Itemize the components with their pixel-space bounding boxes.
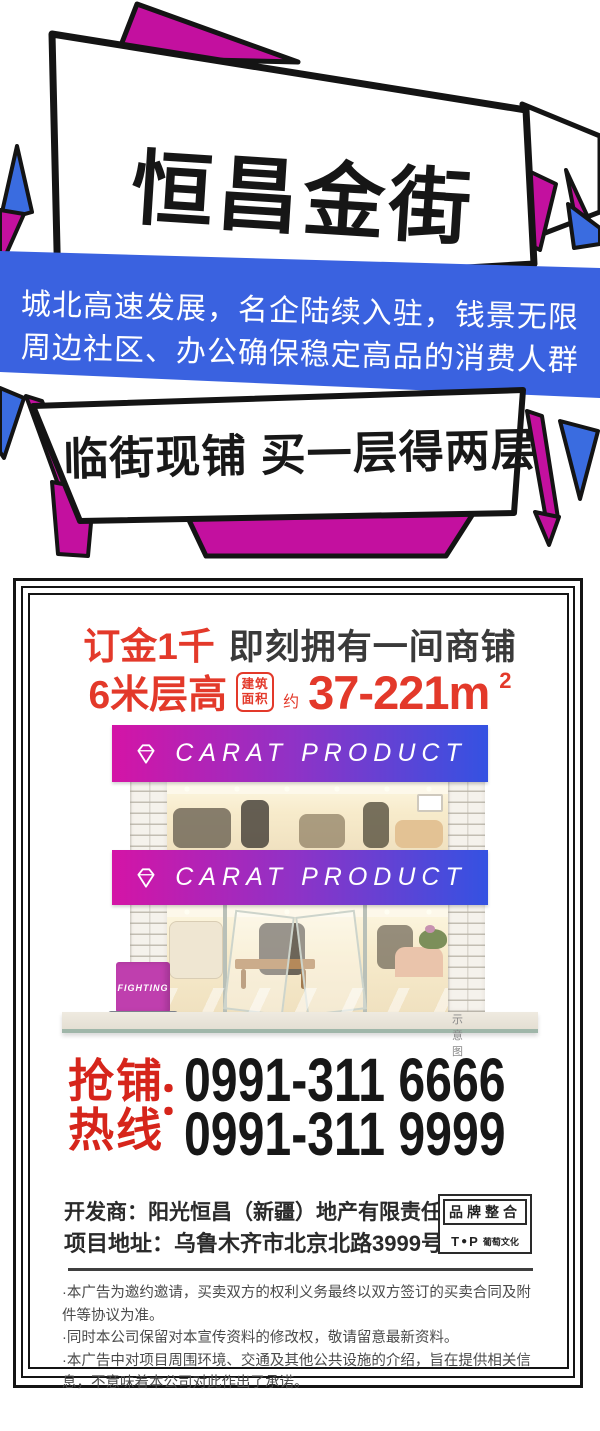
shop-sign-text: CARAT PRODUCT bbox=[175, 739, 466, 768]
disclaimer-line: ·本广告为邀约邀请，买卖双方的权利义务最终以双方签订的买卖合同及附件等协议为准。 bbox=[62, 1282, 540, 1327]
deposit-highlight: 订金1千 bbox=[83, 616, 215, 670]
gem-icon bbox=[133, 866, 159, 890]
area-superscript: 2 bbox=[499, 668, 511, 694]
gem-icon bbox=[133, 742, 159, 766]
slogan-text: 临街现铺 买一层得两层 bbox=[39, 422, 560, 489]
project-address-line: 项目地址：乌鲁木齐市北京北路3999号 bbox=[64, 1226, 443, 1258]
tile-floor bbox=[167, 988, 448, 1012]
brand-logo-t: T bbox=[451, 1234, 459, 1249]
brand-logo: T ● P 葡萄文化 bbox=[440, 1234, 530, 1249]
pink-counter bbox=[395, 947, 443, 977]
clothes-rack-silhouette bbox=[173, 808, 231, 848]
deposit-rest: 即刻拥有一间商铺 bbox=[229, 619, 517, 670]
shop-sign-upper: CARAT PRODUCT bbox=[112, 725, 488, 782]
disclaimer-line: ·同时本公司保留对本宣传资料的修改权，敬请留意最新资料。 bbox=[62, 1327, 540, 1350]
wall-picture bbox=[417, 794, 443, 812]
lower-left-blue-ray bbox=[0, 388, 24, 458]
spec-line: 6米层高 建筑 面积 约 37-221m 2 bbox=[30, 666, 570, 718]
mannequin-silhouette bbox=[241, 800, 269, 848]
brand-logo-dot-icon: ● bbox=[461, 1237, 467, 1247]
flower-blossom bbox=[425, 925, 435, 933]
brand-logo-name: 葡萄文化 bbox=[483, 1235, 519, 1248]
store-interior-upper bbox=[167, 782, 448, 850]
shop-sign-text: CARAT PRODUCT bbox=[175, 863, 466, 892]
area-value: 37-221m bbox=[308, 665, 489, 720]
brand-logo-p: P bbox=[469, 1234, 478, 1249]
brand-integration-box: 品牌整合 T ● P 葡萄文化 bbox=[438, 1194, 532, 1254]
shop-sign-lower: CARAT PRODUCT bbox=[112, 850, 488, 905]
floor-height: 6米层高 bbox=[88, 664, 227, 720]
developer-line: 开发商：阳光恒昌（新疆）地产有限责任公司 bbox=[64, 1196, 484, 1226]
store-interior-lower bbox=[167, 905, 448, 1012]
hotline-label-line1: 抢铺 bbox=[68, 1057, 164, 1105]
lower-right-blue-ray bbox=[560, 421, 598, 499]
clothes-silhouette bbox=[363, 802, 389, 848]
hotline-label-line2: 热线 bbox=[68, 1106, 164, 1154]
top-art: 恒昌金街 城北高速发展，名企陆续入驻，钱景无限 周边社区、办公确保稳定高品的消费… bbox=[0, 0, 600, 560]
standing-sign: FIGHTING bbox=[116, 962, 170, 1013]
brand-box-title: 品牌整合 bbox=[443, 1199, 527, 1225]
approx-label: 约 bbox=[283, 688, 299, 712]
sidewalk bbox=[62, 1012, 538, 1033]
counter-silhouette bbox=[395, 820, 443, 848]
deposit-line: 订金1千 即刻拥有一间商铺 bbox=[30, 616, 570, 662]
area-stamp-line2: 面积 bbox=[242, 692, 269, 707]
area-stamp-line1: 建筑 bbox=[242, 677, 269, 692]
hotline-phone-2: 0991-311 9999 bbox=[184, 1105, 506, 1163]
disclaimer-line: ·本广告中对项目周围环境、交通及其他公共设施的介绍，旨在提供相关信息，不意味着本… bbox=[62, 1350, 540, 1395]
lower-right-magenta-tail bbox=[535, 512, 559, 545]
white-coats-rack bbox=[169, 921, 223, 979]
divider-line bbox=[68, 1268, 533, 1271]
disclaimer: ·本广告为邀约邀请，买卖双方的权利义务最终以双方签订的买卖合同及附件等协议为准。… bbox=[62, 1282, 540, 1395]
ceiling-lights bbox=[167, 782, 448, 794]
area-stamp: 建筑 面积 bbox=[236, 672, 274, 712]
display-table-silhouette bbox=[299, 814, 345, 848]
